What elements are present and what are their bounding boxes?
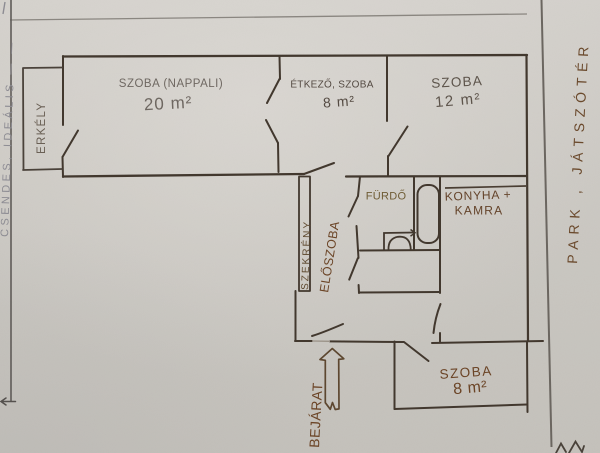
- svg-text:8 m²: 8 m²: [323, 92, 356, 110]
- svg-text:8 m²: 8 m²: [453, 378, 489, 398]
- svg-text:SZOBA (NAPPALI): SZOBA (NAPPALI): [119, 78, 223, 90]
- svg-text:KAMRA: KAMRA: [455, 204, 504, 218]
- svg-text:FÜRDŐ: FÜRDŐ: [366, 189, 407, 203]
- svg-text:SZOBA: SZOBA: [431, 73, 483, 91]
- svg-text:ERKÉLY: ERKÉLY: [35, 102, 48, 154]
- svg-text:KONYHA +: KONYHA +: [444, 187, 511, 203]
- svg-text:20 m²: 20 m²: [143, 93, 192, 115]
- svg-text:BEJÁRAT: BEJÁRAT: [306, 382, 325, 448]
- svg-text:ÉTKEZŐ, SZOBA: ÉTKEZŐ, SZOBA: [290, 77, 373, 91]
